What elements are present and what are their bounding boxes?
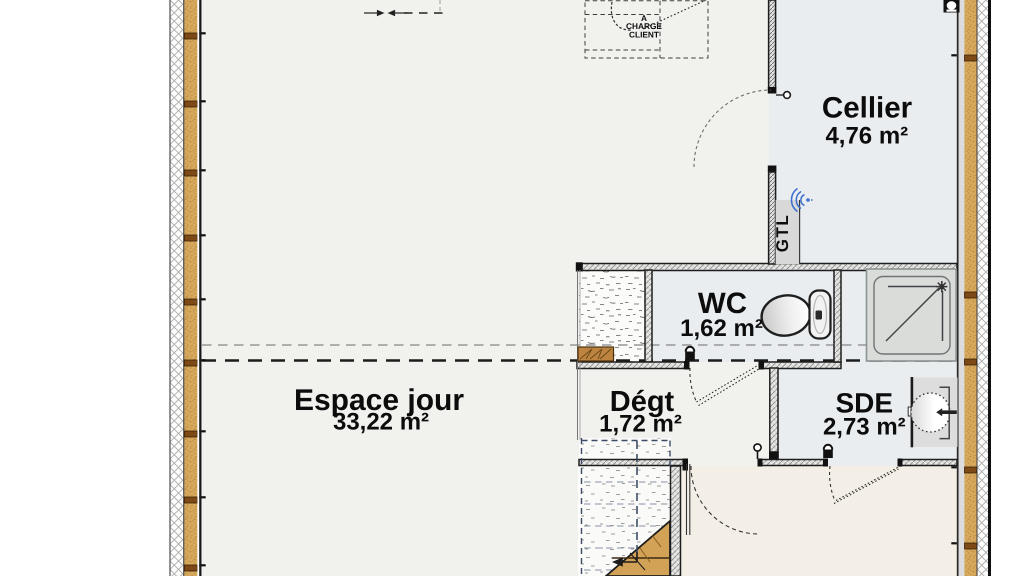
svg-text:33,22 m²: 33,22 m² [333,409,429,436]
svg-text:2,73 m²: 2,73 m² [823,414,906,441]
svg-text:1,72 m²: 1,72 m² [599,411,682,438]
svg-text:1,62 m²: 1,62 m² [680,315,763,342]
svg-text:4,76 m²: 4,76 m² [825,123,908,150]
svg-text:GTL: GTL [773,214,792,253]
svg-text:Cellier: Cellier [822,92,913,125]
svg-text:CLIENT: CLIENT [629,29,659,39]
